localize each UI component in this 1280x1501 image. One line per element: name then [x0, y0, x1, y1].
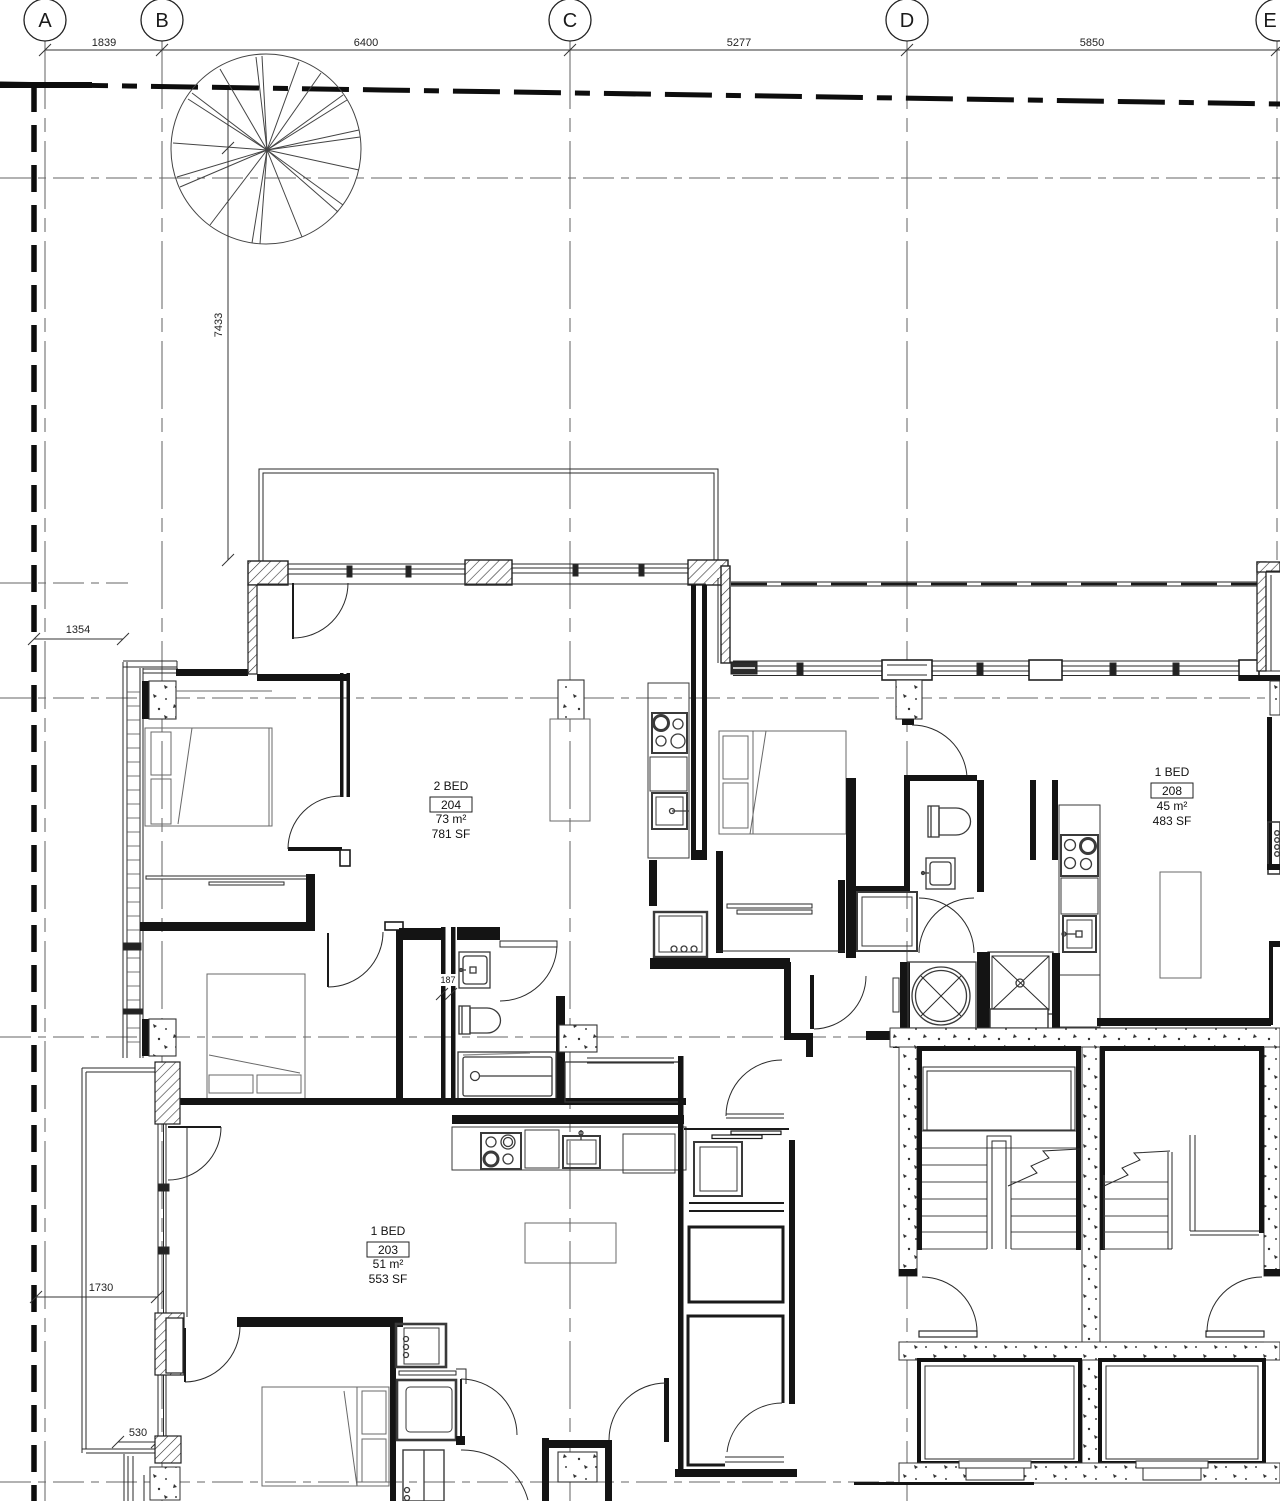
svg-text:5277: 5277 [727, 37, 751, 49]
svg-text:530: 530 [129, 1427, 147, 1439]
svg-text:73 m²: 73 m² [436, 812, 467, 826]
svg-text:1839: 1839 [92, 37, 116, 49]
svg-text:483 SF: 483 SF [1153, 814, 1192, 828]
svg-text:45 m²: 45 m² [1157, 799, 1188, 813]
svg-text:B: B [155, 10, 168, 32]
svg-text:204: 204 [441, 798, 461, 812]
svg-text:781 SF: 781 SF [432, 827, 471, 841]
svg-text:1 BED: 1 BED [371, 1224, 406, 1238]
svg-text:D: D [900, 10, 914, 32]
svg-text:7433: 7433 [213, 313, 225, 337]
svg-text:E: E [1263, 10, 1276, 32]
svg-text:187: 187 [440, 975, 455, 985]
svg-text:208: 208 [1162, 784, 1182, 798]
svg-text:1354: 1354 [66, 624, 90, 636]
svg-text:6400: 6400 [354, 37, 378, 49]
svg-text:1 BED: 1 BED [1155, 765, 1190, 779]
svg-text:5850: 5850 [1080, 37, 1104, 49]
svg-text:553 SF: 553 SF [369, 1272, 408, 1286]
svg-text:203: 203 [378, 1243, 398, 1257]
svg-text:1730: 1730 [89, 1282, 113, 1294]
svg-text:C: C [563, 10, 577, 32]
svg-text:2 BED: 2 BED [434, 779, 469, 793]
svg-text:A: A [38, 10, 52, 32]
svg-text:51 m²: 51 m² [373, 1257, 404, 1271]
